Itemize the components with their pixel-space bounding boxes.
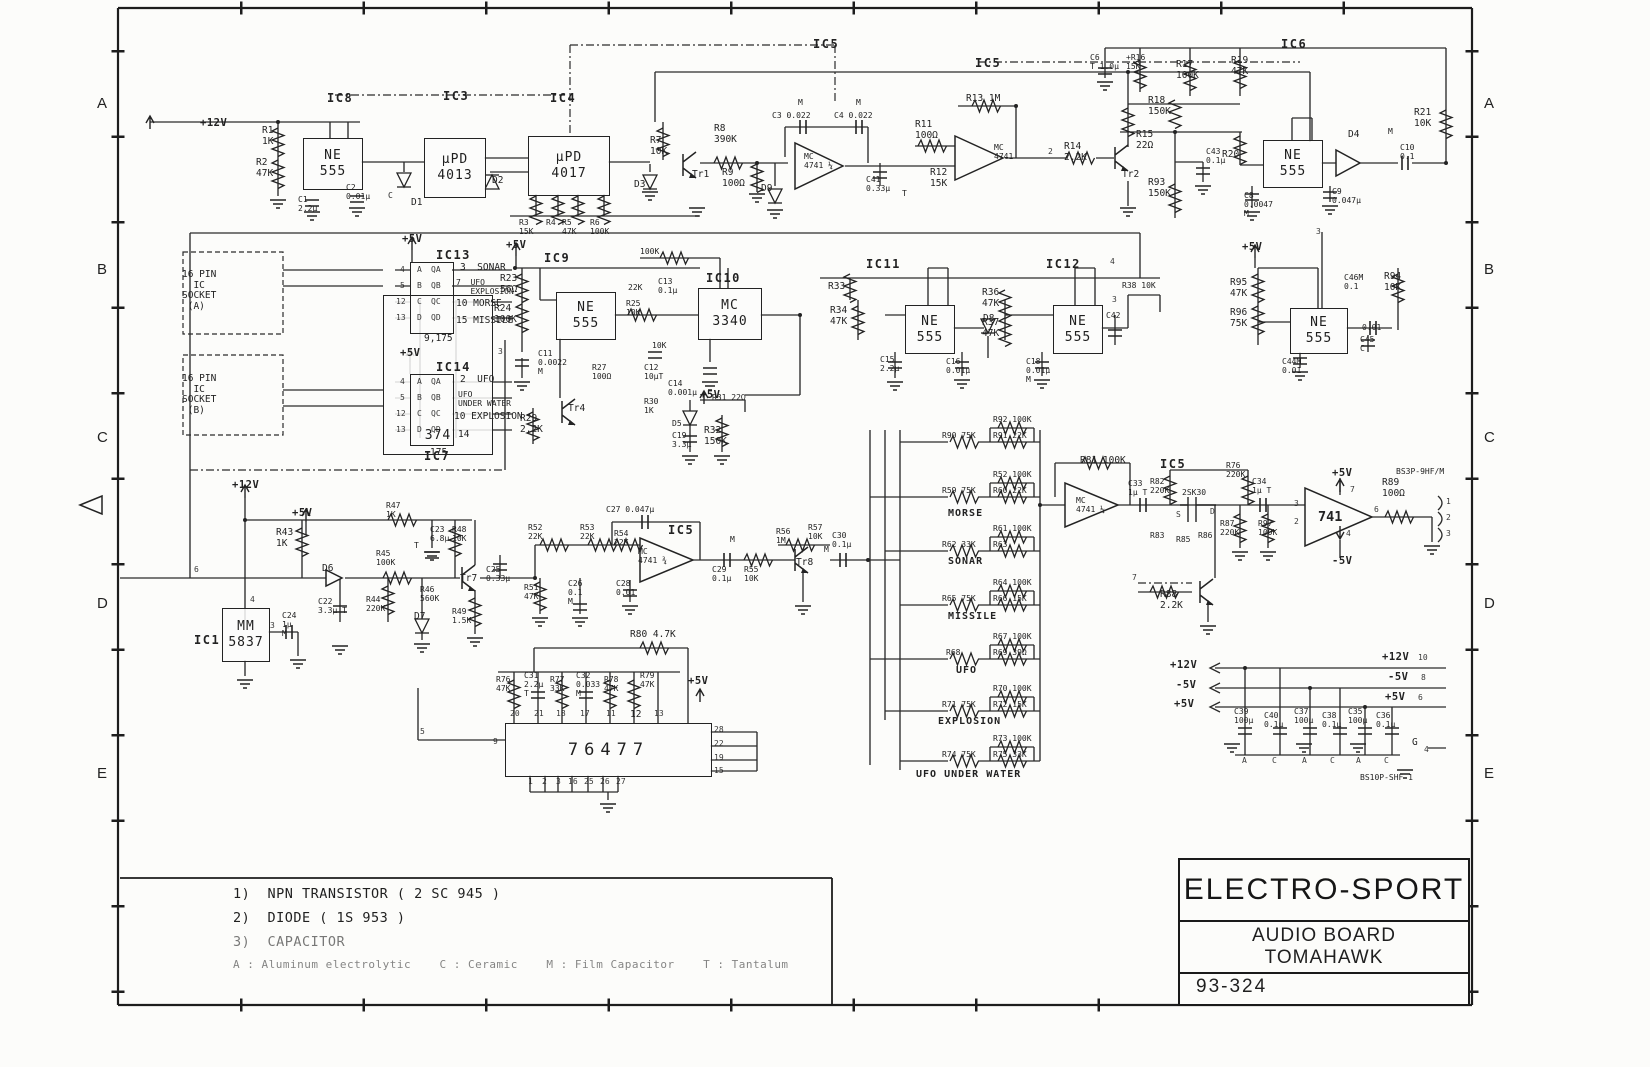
component-label: M [856,99,861,108]
component-label: 0.01 [1362,324,1381,333]
component-label: 2 [542,778,547,787]
ic-part-line1: NE [1069,314,1087,330]
component-label: 5 [420,728,425,737]
component-label: R21 10K [1414,108,1431,129]
component-label: UFO UNDER WATER [916,769,1021,780]
component-label: 100K [640,248,659,257]
component-label: 1 [528,778,533,787]
component-label: C23 6.8μ [430,526,449,544]
note-line: A : Aluminum electrolytic C : Ceramic M … [233,958,843,971]
note-line: 3) CAPACITOR [233,934,843,950]
component-label: R48 10K [452,526,466,544]
component-label: R54 22K [614,530,628,548]
ic-chip: NE 555 [1290,308,1348,354]
board-name: AUDIO BOARD [1252,925,1396,947]
component-label: +5V [1385,692,1405,704]
component-label: 2 [1294,518,1299,527]
component-label: C33 1μ T [1128,480,1147,498]
component-label: IC11 [866,258,901,271]
component-label: 12 [396,298,406,307]
component-label: 9 [493,738,498,747]
component-label: R74 75K [942,751,976,760]
component-label: QA [431,378,441,387]
ic-part-line2: 555 [917,330,943,346]
component-label: C19 3.3μ [672,432,691,450]
note-line: 1) NPN TRANSISTOR ( 2 SC 945 ) [233,886,843,902]
component-label: R52 22K [528,524,542,542]
component-label: D3 [634,180,645,191]
component-label: R78 47K [604,676,618,694]
component-label: D [97,596,108,613]
component-label: A [1302,757,1307,766]
component-label: 14 [458,430,469,441]
component-label: 27 [616,778,626,787]
component-label: R20 [1222,150,1239,161]
component-label: R68 [946,649,960,658]
component-label: 25 [584,778,594,787]
component-label: IC5 [975,57,1001,70]
component-label: 10K [652,342,666,351]
component-label: 10 [1418,654,1428,663]
component-label: 4 [1424,746,1429,755]
component-label: B [1484,262,1494,279]
component-label: M [798,99,803,108]
component-label: 3 SONAR [460,263,506,274]
ic-chip: NE 555 [1053,305,1103,354]
component-label: R85 [1176,536,1190,545]
component-label: R56 1M [776,528,790,546]
component-label: R64 100K [993,579,1032,588]
component-label: 16 [568,778,578,787]
component-label: IC13 [436,249,471,262]
component-label: +12V [1170,660,1197,672]
component-label: 4 [1346,530,1351,539]
component-label: R63 [993,541,1007,550]
component-label: +5V [292,508,312,520]
ic-part-line2: 4013 [437,168,472,184]
component-label: 11 [606,710,616,719]
component-label: R73 100K [993,735,1032,744]
component-label: Tr4 [568,404,585,415]
ic-chip: MM 5837 [222,608,270,662]
component-label: C11 0.0022 M [538,350,567,377]
component-label: 3 [498,348,503,357]
component-label: 13 [396,314,406,323]
component-label: 741 [1318,510,1342,525]
component-label: R47 1K [386,502,400,520]
component-label: 3 [1112,296,1117,305]
ic-part-line2: 5837 [228,635,263,651]
component-label: IC14 [436,361,471,374]
drawing-number: 93-324 [1180,974,1468,1000]
component-label: 12 [396,410,406,419]
component-label: EXPLOSION [938,716,1001,727]
component-label: 3 [1316,228,1321,237]
component-label: C12 10μT [644,364,663,382]
component-label: QD [431,426,441,435]
component-label: +5V [400,348,420,360]
component-label: R1 1K [262,126,273,147]
component-label: E [1484,766,1494,783]
component-label: MC 4741 ¼ [804,153,833,171]
component-label: M [730,536,735,545]
component-label: MORSE [948,508,983,519]
component-label: +5V [1242,242,1262,254]
component-label: R81 100K [1080,456,1126,467]
ic-part-line2: 555 [320,164,346,180]
component-label: D4 [1348,130,1359,141]
component-label: R9 100Ω [722,168,745,189]
component-label: R83 [1150,532,1164,541]
component-label: C4 0.022 [834,112,873,121]
component-label: QB [431,282,441,291]
component-label: R53 22K [580,524,594,542]
component-label: -5V [1332,556,1352,568]
component-label: 13 [654,710,664,719]
component-label: 8 [1421,674,1426,683]
component-label: E [97,766,107,783]
component-label: SONAR [948,556,983,567]
component-label: R4 [546,219,556,228]
component-label: R52 100K [993,471,1032,480]
ic-part-line1: NE [324,148,342,164]
component-label: R37 47K [982,318,999,339]
ic-chip: 76477 [505,723,712,777]
component-label: C [1330,757,1335,766]
component-label: IC5 [1160,458,1186,471]
component-label: +12V [1382,652,1409,664]
component-label: B [97,262,107,279]
component-label: R49 1.5K [452,608,471,626]
component-label: C16 0.01μ [946,358,970,376]
component-label: C [97,430,108,447]
game-name: TOMAHAWK [1265,947,1384,969]
component-label: R89 100Ω [1382,478,1405,499]
component-label: IC8 [327,92,353,105]
component-label: R96 75K [1230,308,1247,329]
component-label: 175 [430,448,447,459]
component-label: R23 56Ω [500,274,517,295]
component-label: C39 100μ [1234,708,1253,726]
component-label: R13 1M [966,94,1000,105]
component-label: C [1384,757,1389,766]
component-label: A [97,96,107,113]
component-label: B [417,282,422,291]
component-label: 9,175 [424,334,453,345]
component-label: 6 [1374,506,1379,515]
component-label: IC4 [550,92,576,105]
component-label: R60 22K [993,487,1027,496]
component-label: C26 0.1 M [568,580,582,607]
component-label: C [417,298,422,307]
component-label: IC12 [1046,258,1081,271]
ic-chip: μPD 4017 [528,136,610,196]
component-label: D [417,426,422,435]
component-label: 4 [250,596,255,605]
component-label: R17 100K [1176,60,1199,81]
component-label: C41 0.33μ [866,176,890,194]
component-label: 21 [534,710,544,719]
component-label: R80 4.7K [630,630,676,641]
component-label: Tr8 [796,558,813,569]
ic-chip: NE 555 [1263,140,1323,188]
component-label: R15 22Ω [1136,130,1153,151]
ic-part-line1: MM [237,619,255,635]
component-label: 22 [714,740,724,749]
ic-part-line1: MC [721,298,739,314]
schematic-sheet: ABCDEABCDE+12VR1 1KR2 47KIC8C1 2.2μC2 0.… [0,0,1650,1067]
component-label: R88 2.2K [1160,590,1183,611]
component-label: R57 10K [808,524,822,542]
component-label: C [1272,757,1277,766]
component-label: S [1176,511,1181,520]
ic-chip: NE 555 [905,305,955,354]
component-label: R65 75K [942,595,976,604]
component-label: MC 4741 [994,144,1013,162]
component-label: R31 22Ω [712,394,746,403]
component-label: +12V [232,480,259,492]
component-label: 28 [714,726,724,735]
component-label: 4 [1110,258,1115,267]
component-label: +5V [688,676,708,688]
notes-block: 1) NPN TRANSISTOR ( 2 SC 945 )2) DIODE (… [233,886,843,979]
component-label: R95 47K [1230,278,1247,299]
component-label: R76 47K [496,676,510,694]
ic-part-line1: NE [1310,315,1328,331]
component-label: +R16 15K [1126,54,1145,72]
ic-part-line1: NE [1284,148,1302,164]
ic-part-line1: μPD [442,152,468,168]
component-label: R18 150K [1148,96,1171,117]
component-label: 16 PIN IC SOCKET (B) [182,374,216,417]
component-label: C46M 0.1 [1344,274,1363,292]
component-label: 4 [400,378,405,387]
component-label: 1 [1446,498,1451,507]
component-label: C44M 0.01 [1282,358,1301,376]
component-label: R25 10K [626,300,640,318]
component-label: R44 220K [366,596,385,614]
component-label: 4 [400,266,405,275]
component-label: C38 0.1μ [1322,712,1341,730]
component-label: R14 2.2K [1064,142,1087,163]
component-label: 20 [510,710,520,719]
component-label: R12 15K [930,168,947,189]
component-label: 7 [1132,574,1137,583]
component-label: -5V [1388,672,1408,684]
component-label: D [1484,596,1495,613]
component-label: MC 4741 ¾ [638,548,667,566]
component-label: C35 100μ [1348,708,1367,726]
component-label: R76 220K [1226,462,1245,480]
component-label: 17 [580,710,590,719]
component-label: C18 0.01μ M [1026,358,1050,385]
component-label: R34 47K [830,306,847,327]
component-label: QC [431,410,441,419]
component-label: T [414,542,419,551]
component-label: R19 47K [1231,56,1248,77]
component-label: D6 [322,564,333,575]
component-label: BS3P-9HF/M [1396,468,1444,477]
component-label: C3 0.022 [772,112,811,121]
component-label: R71 75K [942,701,976,710]
component-label: B [417,394,422,403]
component-label: R91 22K [993,432,1027,441]
component-label: -5V [1176,680,1196,692]
component-label: IC9 [544,252,570,265]
component-label: 6 [194,566,199,575]
component-label: IC1 [194,634,220,647]
component-label: C8 0.0047 M [1244,192,1273,219]
component-label: D2 [492,176,503,187]
component-label: R29 2.2K [520,414,543,435]
component-label: D1 [411,198,422,209]
component-label: C40 0.1μ [1264,712,1283,730]
ic-part-line1: 76477 [568,740,649,760]
component-label: C [388,192,393,201]
component-label: R82 220K [1150,478,1169,496]
component-label: C9 0.047μ [1332,188,1361,206]
component-label: R93 150K [1148,178,1171,199]
component-label: +5V [1332,468,1352,480]
component-label: R90 75K [942,432,976,441]
component-label: 3 [270,622,275,631]
component-label: 10 EXPLOSION [454,412,523,423]
component-label: IC3 [443,90,469,103]
ic-part-line2: 4017 [551,166,586,182]
component-label: R87 220K [1220,520,1239,538]
component-label: +12V [200,118,227,130]
component-label: R75 33K [993,751,1027,760]
component-label: C [417,410,422,419]
component-label: C24 1μ M [282,612,296,639]
component-label: IC5 [668,524,694,537]
component-label: 3 [556,778,561,787]
component-label: IC6 [1281,38,1307,51]
component-label: 12 [630,710,641,721]
component-label: D9 [761,184,772,195]
component-label: C28 0.01 [616,580,635,598]
component-label: C2 0.01μ [346,184,370,202]
ic-part-line1: μPD [556,150,582,166]
component-label: C32 0.033 M [576,672,600,699]
component-label: C30 0.1μ [832,532,851,550]
component-label: A [417,266,422,275]
component-label: R30 1K [644,398,658,416]
component-label: C36 0.1μ [1376,712,1395,730]
component-label: R32 150K [704,426,727,447]
component-label: 22K [628,284,642,293]
component-label: R2 47K [256,158,273,179]
component-label: T [902,190,907,199]
component-label: R92 100K [993,416,1032,425]
component-label: R79 47K [640,672,654,690]
component-label: 16 PIN IC SOCKET (A) [182,270,216,313]
component-label: R8 390K [714,124,737,145]
component-label: R24 100K [494,304,517,325]
component-label: Tr1 [692,170,709,181]
component-label: QC [431,298,441,307]
ic-part-line2: 555 [1280,164,1306,180]
component-label: R7 10K [650,136,667,157]
component-label: UFO [956,665,977,676]
component-label: IC10 [706,272,741,285]
component-label: 19 [714,754,724,763]
component-label: C45 C [1360,336,1374,354]
ic-part-line2: 555 [1306,331,1332,347]
component-label: C27 0.047μ [606,506,654,515]
ic-chip: μPD 4013 [424,138,486,198]
ic-chip: NE 555 [556,292,616,340]
component-label: M [1388,128,1393,137]
component-label: M [824,546,829,555]
component-label: 15 [714,767,724,776]
component-label: C14 0.001μ [668,380,697,398]
component-label: R67 100K [993,633,1032,642]
component-label: C10 0.1 [1400,144,1414,162]
ic-part-line2: 3340 [712,314,747,330]
component-label: R33 [828,282,845,293]
component-label: QD [431,314,441,323]
component-label: 2 UFO [460,375,494,386]
component-label: R77 33K [550,676,564,694]
component-label: A [1356,757,1361,766]
component-label: 2 [1446,514,1451,523]
component-label: R43 1K [276,528,293,549]
component-label: R11 100Ω [915,120,938,141]
component-label: IC5 [813,38,839,51]
component-label: +5V [506,240,526,252]
component-label: 2 [1048,148,1053,157]
component-label: C1 2.2μ [298,196,317,214]
component-label: R5 47K [562,219,576,237]
component-label: UFO UNDER WATER [458,391,511,409]
component-label: 6 [1418,694,1423,703]
component-label: C34 1μ T [1252,478,1271,496]
component-label: C6 T 1.0μ [1090,54,1119,72]
component-label: R36 47K [982,288,999,309]
component-label: D7 [414,612,425,623]
component-label: Tr7 [460,574,477,585]
component-label: 5 [400,282,405,291]
component-label: BS10P-SHF-1 [1360,774,1413,783]
component-label: C29 0.1μ [712,566,731,584]
component-label: +5V [1174,699,1194,711]
component-label: R62 33K [942,541,976,550]
component-label: R61 100K [993,525,1032,534]
component-label: R72 15K [993,701,1027,710]
component-label: QA [431,266,441,275]
component-label: D5 [672,420,682,429]
component-label: R69 39Ω [993,649,1027,658]
component-label: C22 3.3μ T [318,598,347,616]
component-label: C31 2.2μ T [524,672,543,699]
component-label: 7 [1350,486,1355,495]
component-label: 18 [556,710,566,719]
component-label: 5 [400,394,405,403]
note-line: 2) DIODE ( 1S 953 ) [233,910,843,926]
component-label: 13 [396,426,406,435]
ic-part-line2: 555 [573,316,599,332]
component-label: C13 0.1μ [658,278,677,296]
component-label: A [1242,757,1247,766]
component-label: 3 [1446,530,1451,539]
ic-part-line2: 555 [1065,330,1091,346]
component-label: C37 100μ [1294,708,1313,726]
component-label: C42 [1106,312,1120,321]
component-label: +5V [402,234,422,246]
component-label: 2SK30 [1182,489,1206,498]
component-label: R66 15K [993,595,1027,604]
